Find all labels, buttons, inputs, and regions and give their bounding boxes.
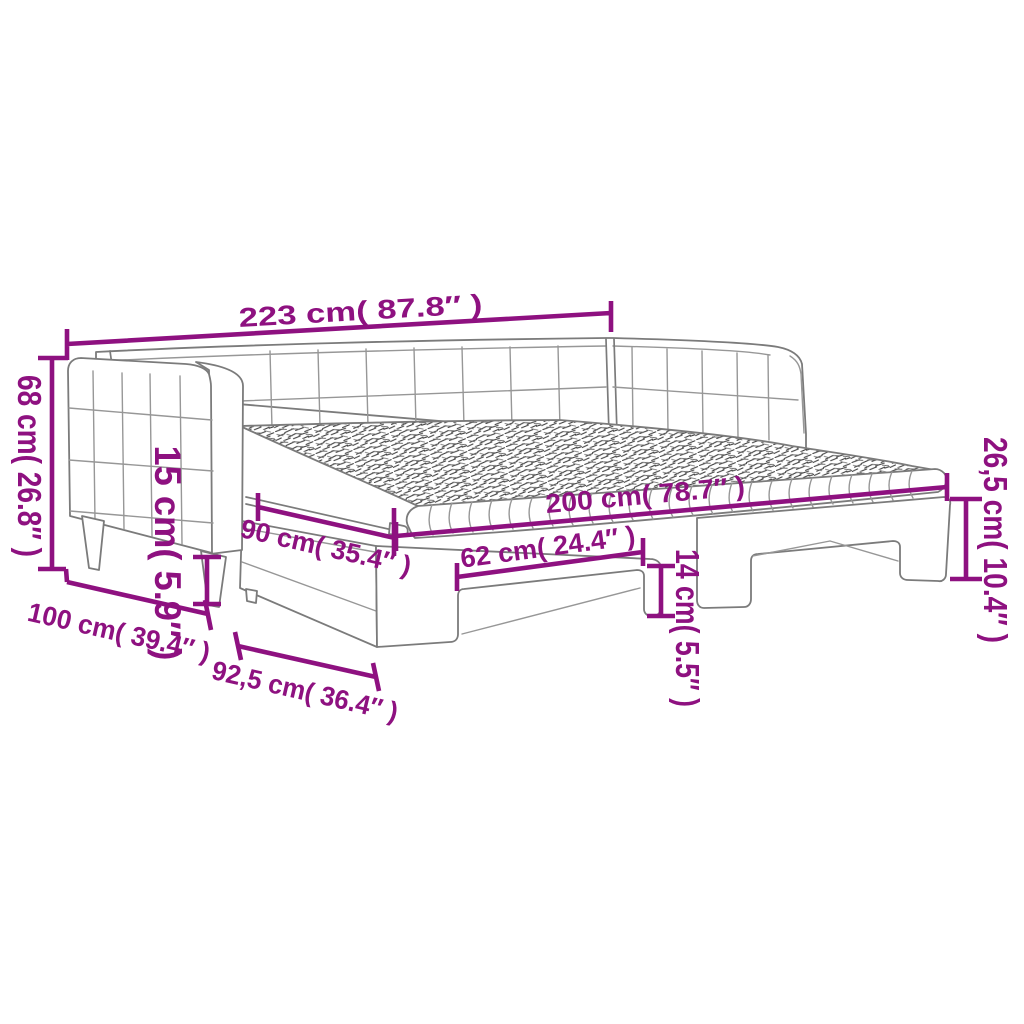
daybed-dimension-drawing: 223 cm( 87.8″ ) 68 cm( 26.8″ ) 15 cm( 5.… xyxy=(0,0,1024,1024)
dimension-diagram-page: 223 cm( 87.8″ ) 68 cm( 26.8″ ) 15 cm( 5.… xyxy=(0,0,1024,1024)
dim-label-base-height: 26,5 cm( 10.4″ ) xyxy=(977,437,1014,643)
armrest-front-leg xyxy=(82,516,104,570)
bed-base xyxy=(697,497,950,608)
dim-label-back-height: 68 cm( 26.8″ ) xyxy=(11,375,48,557)
dimension-back-height: 68 cm( 26.8″ ) xyxy=(11,358,68,582)
dimension-trundle-depth: 92,5 cm( 36.4″ ) xyxy=(209,632,401,727)
dimension-base-height: 26,5 cm( 10.4″ ) xyxy=(950,437,1014,643)
dim-label-trundle-clearance: 14 cm( 5.5″ ) xyxy=(669,549,706,707)
trundle-rear-rail xyxy=(462,588,640,634)
trundle-back-leg xyxy=(246,589,257,603)
